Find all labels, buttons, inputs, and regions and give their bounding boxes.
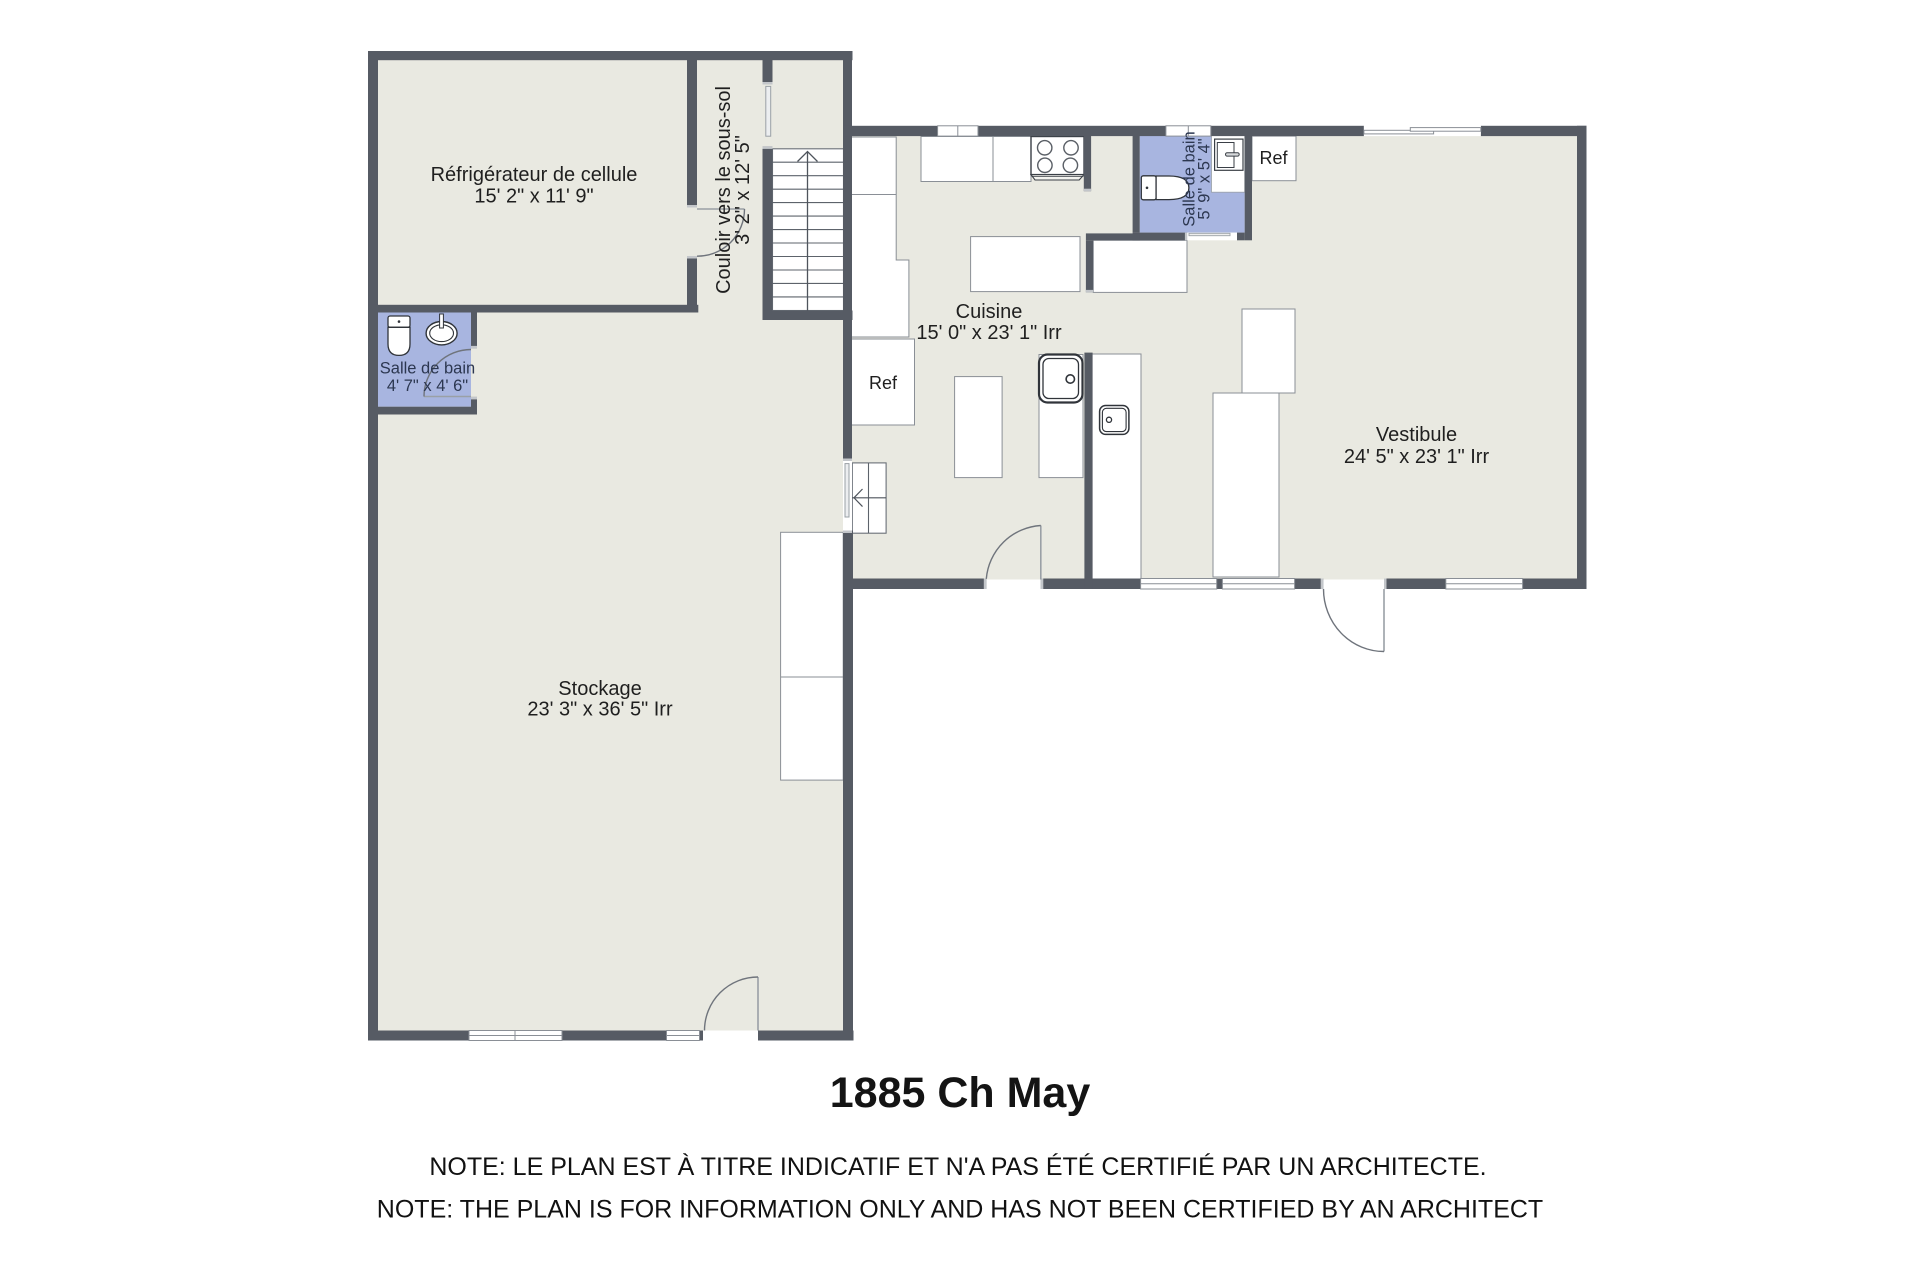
svg-text:Réfrigérateur de cellule: Réfrigérateur de cellule bbox=[431, 164, 638, 186]
svg-text:23' 3" x 36' 5" Irr: 23' 3" x 36' 5" Irr bbox=[527, 699, 673, 721]
svg-text:15' 2" x 11' 9": 15' 2" x 11' 9" bbox=[474, 185, 593, 207]
svg-text:3' 2" x 12' 5": 3' 2" x 12' 5" bbox=[732, 135, 754, 245]
svg-text:15' 0" x 23' 1" Irr: 15' 0" x 23' 1" Irr bbox=[916, 322, 1062, 344]
svg-text:Vestibule: Vestibule bbox=[1376, 424, 1457, 446]
svg-text:5' 9" x 5' 4": 5' 9" x 5' 4" bbox=[1196, 138, 1214, 219]
svg-text:Cuisine: Cuisine bbox=[956, 301, 1023, 323]
svg-text:1885 Ch May: 1885 Ch May bbox=[830, 1069, 1091, 1117]
svg-text:4' 7" x 4' 6": 4' 7" x 4' 6" bbox=[387, 377, 468, 395]
svg-text:Ref: Ref bbox=[1259, 148, 1288, 168]
svg-text:Salle de bain: Salle de bain bbox=[380, 360, 475, 378]
svg-text:Stockage: Stockage bbox=[558, 678, 641, 700]
svg-text:NOTE: LE PLAN EST À TITRE INDI: NOTE: LE PLAN EST À TITRE INDICATIF ET N… bbox=[429, 1152, 1486, 1181]
svg-text:Ref: Ref bbox=[869, 373, 898, 393]
svg-text:NOTE: THE PLAN IS FOR INFORMAT: NOTE: THE PLAN IS FOR INFORMATION ONLY A… bbox=[377, 1196, 1543, 1224]
svg-text:24' 5" x 23' 1" Irr: 24' 5" x 23' 1" Irr bbox=[1344, 446, 1490, 468]
